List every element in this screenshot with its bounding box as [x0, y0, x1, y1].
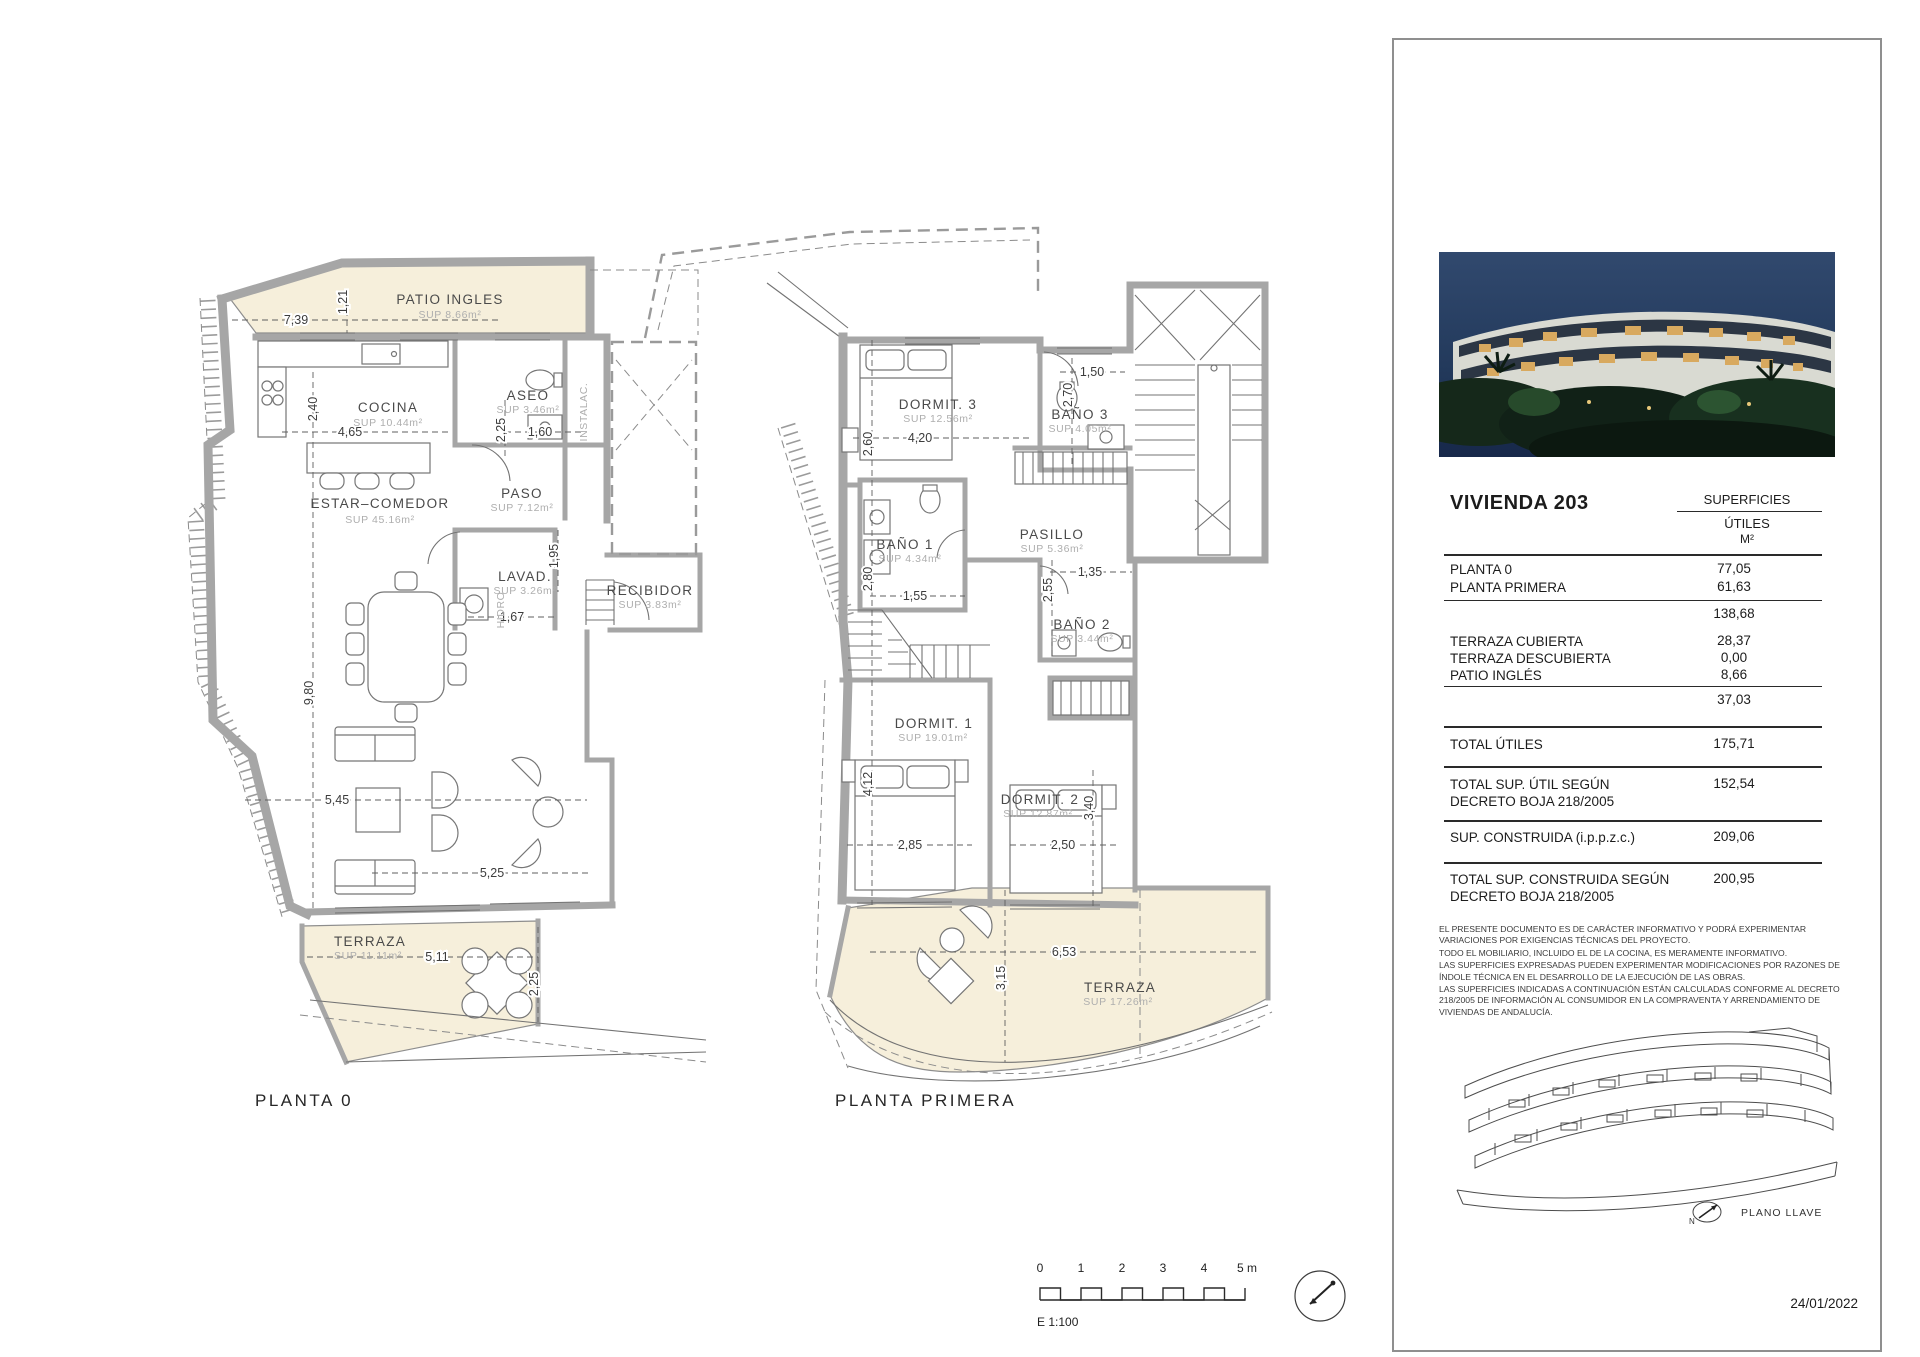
room-sup: SUP 7.12m²: [491, 502, 554, 514]
table-row: PLANTA PRIMERA61,63: [1450, 579, 1822, 596]
scale-rule: [1040, 1288, 1245, 1300]
scale-ticks: 0 1 2 3 4 5 m: [1037, 1261, 1257, 1275]
table-row-total: SUP. CONSTRUIDA (i.p.p.z.c.)209,06: [1450, 829, 1822, 846]
room-label-bano-2: BAÑO 2: [1053, 617, 1110, 632]
dim: 2,50: [1051, 838, 1075, 852]
svg-text:3: 3: [1160, 1261, 1167, 1275]
svg-text:5 m: 5 m: [1237, 1261, 1257, 1275]
room-label-pasillo: PASILLO: [1020, 527, 1084, 542]
table-row: PLANTA 077,05: [1450, 561, 1822, 578]
svg-text:4: 4: [1201, 1261, 1208, 1275]
table-row-subtotal: 37,03: [1450, 692, 1822, 707]
room-label-paso: PASO: [501, 486, 543, 501]
north-indicator-icon: [1295, 1271, 1345, 1321]
dim: 9,80: [302, 681, 316, 705]
keyplan-label: PLANO LLAVE: [1741, 1207, 1822, 1219]
dim: 3,15: [994, 966, 1008, 990]
room-sup: SUP 11.11m²: [334, 950, 402, 962]
table-row: TERRAZA CUBIERTA28,37: [1450, 633, 1822, 650]
interior-stairs-p1: [848, 610, 990, 678]
dim: 2,25: [527, 972, 541, 996]
stairwell-p1: [1135, 290, 1262, 555]
room-label-bano-1: BAÑO 1: [876, 537, 933, 552]
dim: 2,25: [494, 418, 508, 442]
room-sup: SUP 45.16m²: [345, 514, 414, 526]
legal-notes: EL PRESENTE DOCUMENTO ES DE CARÁCTER INF…: [1439, 924, 1841, 1019]
dim: 1,60: [528, 425, 552, 439]
table-row: PATIO INGLÉS8,66: [1450, 667, 1822, 684]
room-label-dormit-2: DORMIT. 2: [1001, 792, 1079, 807]
room-sup: SUP 8.66m²: [419, 309, 482, 321]
dim: 2,70: [1061, 383, 1075, 407]
legal-line: LAS SUPERFICIES EXPRESADAS PUEDEN EXPERI…: [1439, 960, 1841, 983]
unit-title: VIVIENDA 203: [1450, 492, 1589, 515]
plan-sheet: 7,39 1,21 2,40 4,65 2,25 1,60 1,95 1,67 …: [0, 0, 1920, 1357]
room-sup: SUP 17.26m²: [1083, 996, 1152, 1008]
floor-plan-planta-primera: 1,50 2,70 4,20 2,60 2,80 1,55 1,35 2,55 …: [620, 200, 1320, 1130]
room-sup: SUP 3.44m²: [1051, 633, 1114, 645]
column-header: SUPERFICIES: [1677, 492, 1817, 507]
dim: 1,95: [547, 544, 561, 568]
dim: 2,55: [1041, 578, 1055, 602]
table-row: TERRAZA DESCUBIERTA0,00: [1450, 650, 1822, 667]
room-label-dormit-3: DORMIT. 3: [899, 397, 977, 412]
room-sup: SUP 19.01m²: [898, 732, 967, 744]
dim: 6,53: [1052, 945, 1076, 959]
north-label: N: [1689, 1217, 1695, 1226]
room-sup: SUP 12.87m²: [1003, 808, 1072, 820]
terrace-set-p0: [462, 948, 532, 1018]
dim: 1,35: [1078, 565, 1102, 579]
scale-label: E 1:100: [1037, 1315, 1079, 1329]
dim: 2,85: [898, 838, 922, 852]
room-label-terraza: TERRAZA: [334, 934, 406, 949]
dim: 5,11: [425, 950, 448, 964]
dim: 2,60: [861, 432, 875, 456]
dim: 4,20: [908, 431, 932, 445]
svg-text:0: 0: [1037, 1261, 1044, 1275]
living-furniture: [335, 727, 563, 894]
north-arrow-icon: N: [1689, 1202, 1721, 1226]
dim: 2,80: [861, 567, 875, 591]
room-label-aseo: ASEO: [507, 388, 550, 403]
dim: 2,40: [306, 397, 320, 421]
dim: 4,12: [861, 772, 875, 796]
info-panel: VIVIENDA 203 SUPERFICIES ÚTILES M² PLANT…: [1392, 38, 1882, 1352]
roof-outline-p1: [645, 228, 1038, 338]
column-unit: M²: [1677, 532, 1817, 546]
dim: 5,25: [480, 866, 504, 880]
legal-line: TODO EL MOBILIARIO, INCLUIDO EL DE LA CO…: [1439, 948, 1841, 959]
dim: 1,55: [903, 589, 927, 603]
table-row-total: TOTAL ÚTILES175,71: [1450, 736, 1822, 753]
room-sup: SUP 5.36m²: [1021, 543, 1084, 555]
room-label-cocina: COCINA: [358, 400, 418, 415]
svg-text:1: 1: [1078, 1261, 1085, 1275]
dim: 5,45: [325, 793, 349, 807]
room-label-hidro: HIDRO: [495, 592, 507, 629]
column-subheader: ÚTILES: [1677, 516, 1817, 531]
room-label-lavadero: LAVAD.: [498, 569, 552, 584]
dim: 1,50: [1080, 365, 1104, 379]
key-plan-sketch: N PLANO LLAVE: [1449, 1008, 1841, 1258]
room-label-instalac: INSTALAC.: [578, 383, 590, 442]
room-label-dormit-1: DORMIT. 1: [895, 716, 973, 731]
plan-title-planta-primera: PLANTA PRIMERA: [835, 1091, 1016, 1110]
dim: 7,39: [284, 313, 308, 327]
date-stamp: 24/01/2022: [1790, 1296, 1858, 1311]
room-sup: SUP 3.46m²: [497, 404, 560, 416]
room-sup: SUP 12.56m²: [903, 413, 972, 425]
scale-bar: 0 1 2 3 4 5 m E 1:100: [1015, 1252, 1360, 1338]
dining-set: [346, 572, 466, 722]
room-sup: SUP 4.05m²: [1049, 423, 1112, 435]
dim: 3,40: [1082, 796, 1096, 820]
table-row-total: TOTAL SUP. CONSTRUIDA SEGÚN DECRETO BOJA…: [1450, 871, 1822, 905]
legal-line: EL PRESENTE DOCUMENTO ES DE CARÁCTER INF…: [1439, 924, 1841, 947]
svg-text:2: 2: [1119, 1261, 1126, 1275]
room-label-terraza-p1: TERRAZA: [1084, 980, 1156, 995]
table-row-subtotal: 138,68: [1450, 606, 1822, 621]
room-sup: SUP 10.44m²: [353, 417, 422, 429]
plan-title-planta-0: PLANTA 0: [255, 1091, 353, 1110]
room-label-patio-ingles: PATIO INGLES: [396, 292, 503, 307]
table-row-total: TOTAL SUP. ÚTIL SEGÚN DECRETO BOJA 218/2…: [1450, 776, 1822, 810]
room-label-estar-comedor: ESTAR–COMEDOR: [311, 496, 450, 511]
kitchen-fixtures: [258, 341, 448, 489]
dim: 1,21: [336, 290, 350, 314]
room-label-bano-3: BAÑO 3: [1051, 407, 1108, 422]
room-sup: SUP 4.34m²: [879, 553, 942, 565]
